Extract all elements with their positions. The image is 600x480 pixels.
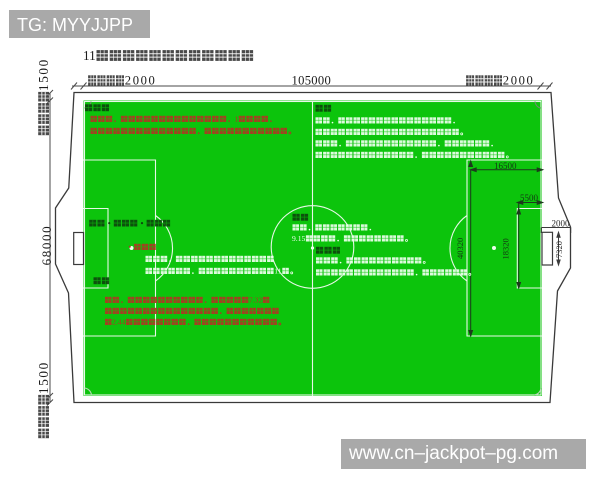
svg-text:16500: 16500 [494, 161, 517, 171]
svg-text:11: 11 [83, 48, 96, 63]
svg-text:2000: 2000 [503, 74, 535, 88]
svg-text:5500: 5500 [520, 193, 539, 203]
svg-text:2000: 2000 [125, 74, 157, 88]
svg-text:1500: 1500 [36, 58, 51, 91]
svg-text:105000: 105000 [292, 74, 332, 88]
svg-text:7320: 7320 [554, 241, 564, 258]
svg-text:7.32: 7.32 [249, 295, 262, 304]
svg-text:9.15: 9.15 [292, 234, 305, 243]
svg-text:2000: 2000 [552, 219, 571, 229]
svg-text:18320: 18320 [501, 238, 511, 259]
svg-text:40320: 40320 [455, 238, 465, 259]
svg-text:11: 11 [274, 266, 282, 275]
svg-text:2.44: 2.44 [112, 317, 125, 326]
svg-text:68000: 68000 [39, 225, 54, 265]
svg-text:1500: 1500 [36, 361, 51, 394]
svg-text:1: 1 [234, 114, 238, 123]
